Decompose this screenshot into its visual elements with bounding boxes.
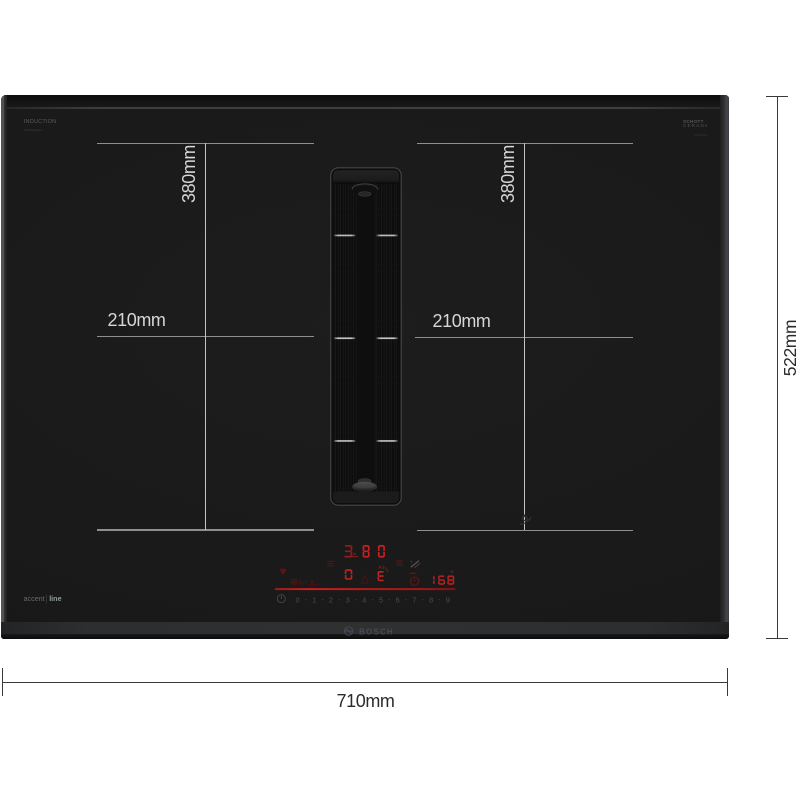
svg-text:5s: 5s bbox=[298, 580, 304, 586]
svg-text:6: 6 bbox=[396, 595, 400, 604]
svg-text:1: 1 bbox=[312, 595, 316, 604]
svg-text:9: 9 bbox=[446, 595, 450, 604]
svg-text:4: 4 bbox=[362, 595, 366, 604]
svg-text:2: 2 bbox=[329, 595, 333, 604]
svg-text:8: 8 bbox=[429, 595, 433, 604]
svg-text:7: 7 bbox=[412, 595, 416, 604]
svg-text:0: 0 bbox=[295, 595, 299, 604]
svg-text:5: 5 bbox=[379, 595, 383, 604]
svg-text:3: 3 bbox=[346, 595, 350, 604]
svg-text:BOSCH: BOSCH bbox=[359, 627, 392, 636]
